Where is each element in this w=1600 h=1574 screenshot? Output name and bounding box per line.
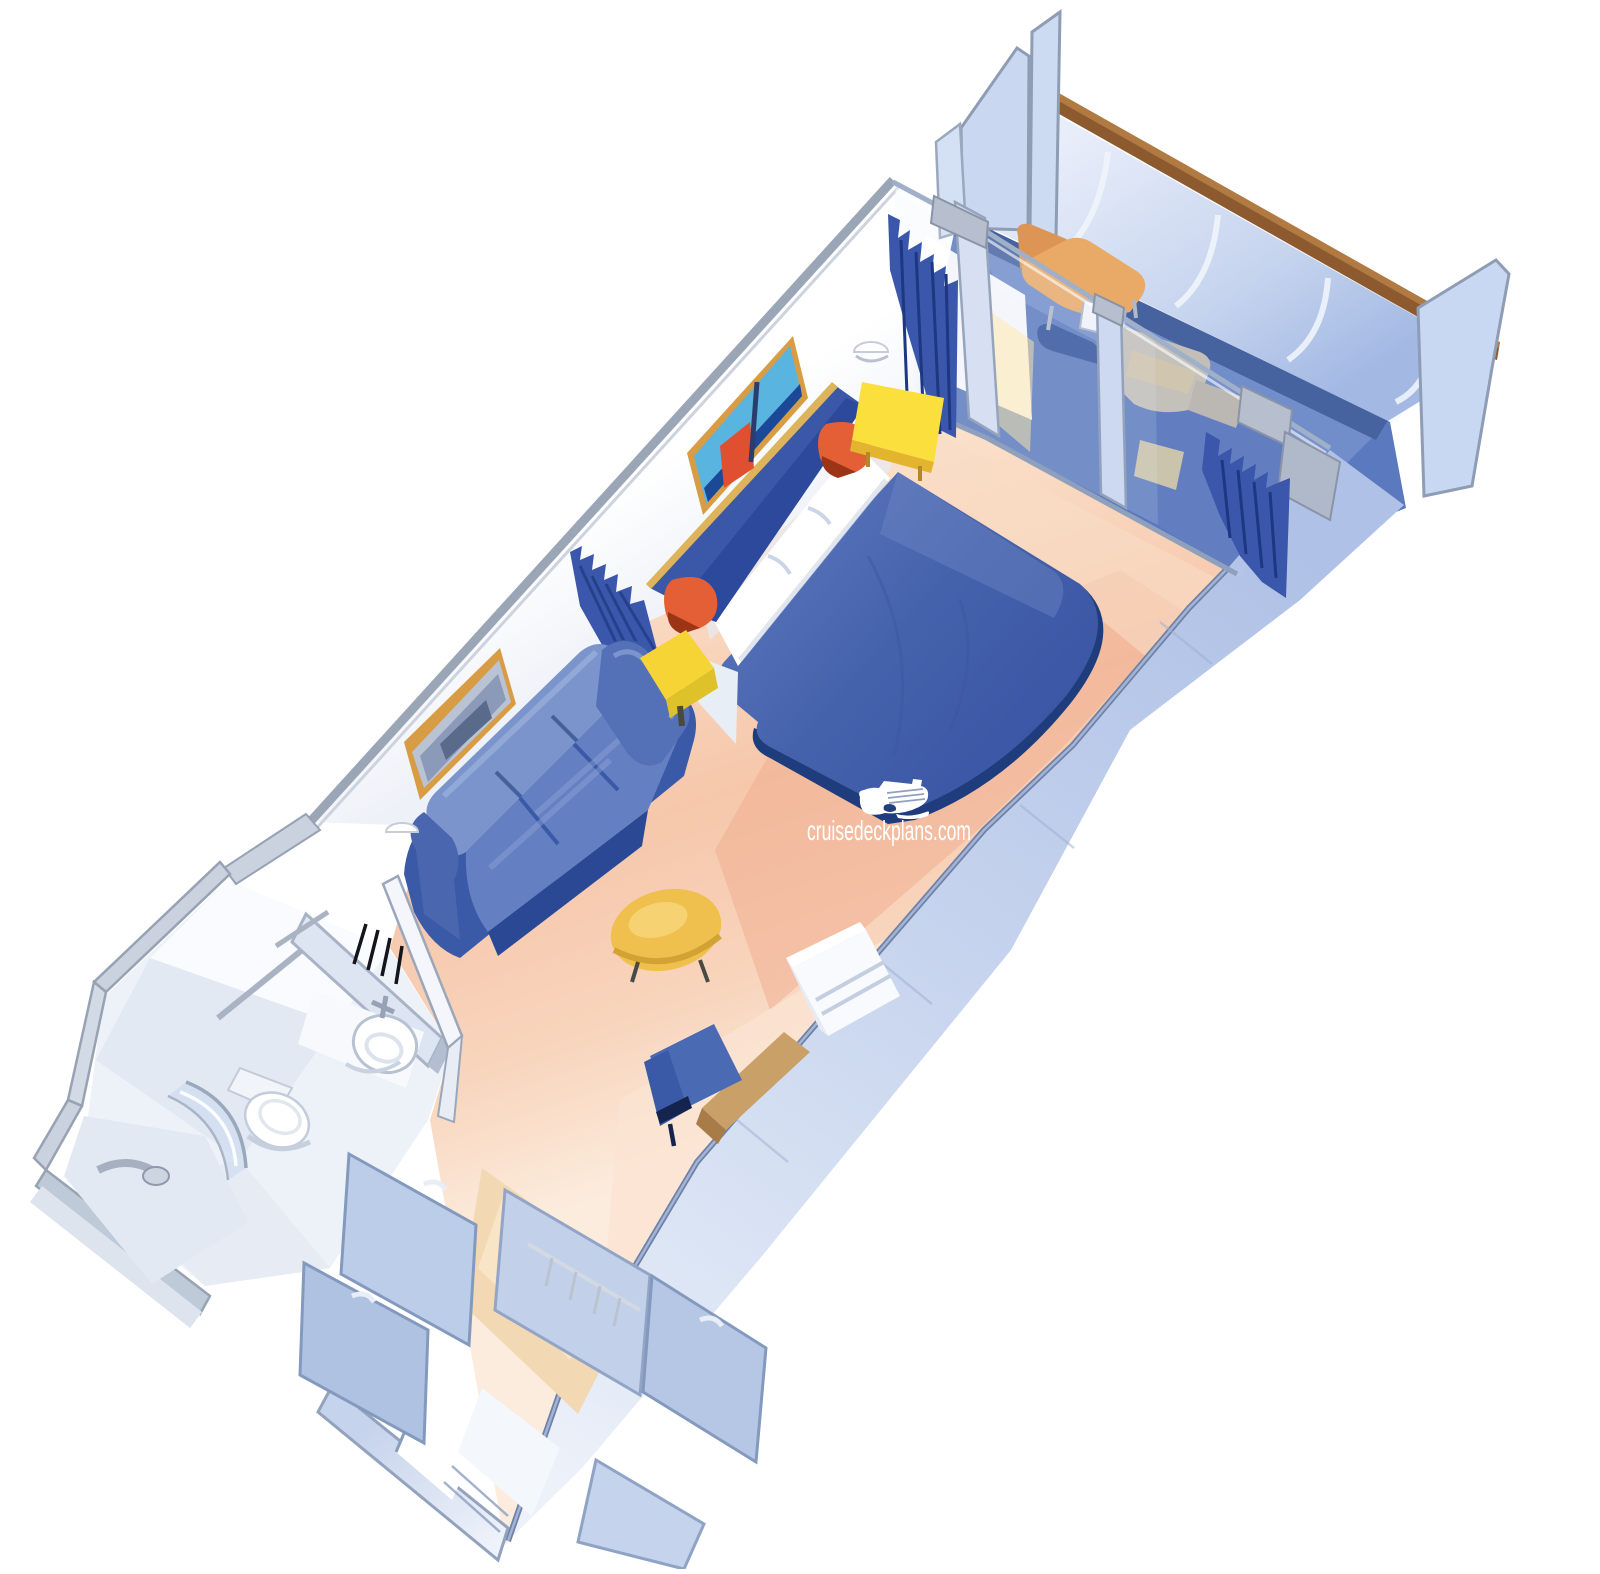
svg-text:cruisedeckplans.com: cruisedeckplans.com [807, 815, 971, 846]
